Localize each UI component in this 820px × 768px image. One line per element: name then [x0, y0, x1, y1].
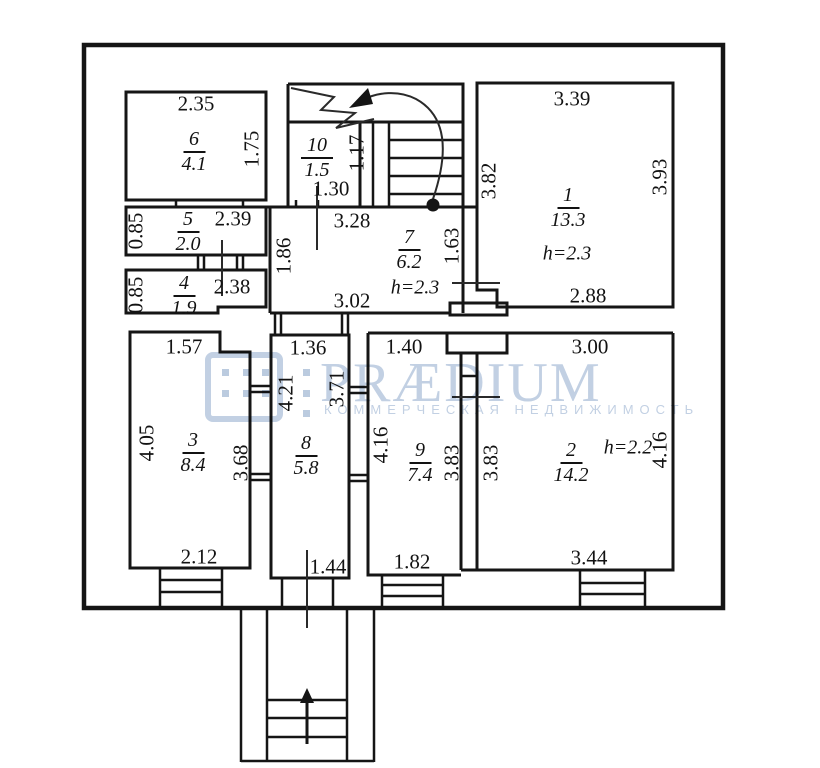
stair-flight-wall — [373, 122, 389, 207]
room-2-dim-bottom: 3.44 — [571, 546, 608, 571]
room-7-dim-bottom: 3.02 — [334, 289, 371, 314]
room-7-dim-right: 1.63 — [440, 228, 465, 265]
duct-rooms-9-2 — [447, 333, 507, 353]
room-5-label: 5 2.0 — [176, 209, 201, 255]
steps-room-3 — [160, 568, 222, 607]
steps-room-9 — [382, 575, 443, 607]
room-7-height: h=2.3 — [391, 277, 440, 300]
stair-direction-arc — [363, 93, 443, 199]
pier-5-4 — [198, 255, 243, 270]
outer-wall — [84, 45, 723, 608]
room-1-label: 1 13.3 — [551, 185, 586, 231]
entry-arrowhead-icon — [300, 688, 314, 703]
room-4-dim-right: 2.38 — [214, 275, 251, 300]
room-5-dim-left: 0.85 — [124, 213, 149, 250]
room-8-dim-bottom: 1.44 — [310, 555, 347, 580]
room-6-dim-top: 2.35 — [178, 92, 215, 117]
floorplan-linework — [0, 0, 820, 768]
room-4-label: 4 1.9 — [172, 273, 197, 319]
room-8-label: 8 5.8 — [294, 433, 319, 479]
room-10-dim-right: 1.17 — [345, 135, 370, 172]
room-3-label: 3 8.4 — [181, 430, 206, 476]
room-8-dim-left: 4.21 — [274, 375, 299, 412]
room-9-dim-right: 3.83 — [440, 445, 465, 482]
room-7-dim-left: 1.86 — [272, 238, 297, 275]
room-1-height: h=2.3 — [543, 243, 592, 266]
pier-7-8 — [275, 313, 348, 335]
room-1-dim-top: 3.39 — [554, 87, 591, 112]
room-8-dim-right: 3.71 — [325, 371, 350, 408]
pier-8-9 — [349, 387, 368, 481]
room-5-dim-right: 2.39 — [215, 207, 252, 232]
room-2-label: 2 14.2 — [554, 440, 589, 486]
room-3-dim-left: 4.05 — [135, 425, 160, 462]
room-7-label: 7 6.2 — [397, 227, 422, 273]
room-1-dim-bottom: 2.88 — [570, 284, 607, 309]
floorplan-canvas: PRÆDIUM КОММЕРЧЕСКАЯ НЕДВИЖИМОСТЬ 2.35 1… — [0, 0, 820, 768]
room-6-dim-right: 1.75 — [240, 131, 265, 168]
room-1-dim-left: 3.82 — [477, 163, 502, 200]
room-3-dim-right: 3.68 — [229, 445, 254, 482]
room-10-label: 10 1.5 — [301, 135, 333, 181]
room-2-height: h=2.2 — [604, 437, 653, 460]
room-9-dim-top: 1.40 — [386, 335, 423, 360]
room-2-dim-top: 3.00 — [572, 335, 609, 360]
room-9-label: 9 7.4 — [408, 440, 433, 486]
steps-room-2 — [580, 570, 645, 607]
room-8-dim-top: 1.36 — [290, 336, 327, 361]
room-2-dim-left: 3.83 — [479, 445, 504, 482]
room-3-dim-top: 1.57 — [166, 335, 203, 360]
room-7-dim-top: 3.28 — [334, 209, 371, 234]
stair-start-dot — [427, 199, 440, 212]
room-4-dim-left: 0.85 — [124, 277, 149, 314]
room-9-dim-bottom: 1.82 — [394, 550, 431, 575]
stair-arrowhead-icon — [349, 88, 373, 108]
room-9-dim-left: 4.16 — [369, 427, 394, 464]
room-1-dim-right: 3.93 — [648, 159, 673, 196]
stair-treads — [389, 140, 463, 194]
room-6-label: 6 4.1 — [182, 129, 207, 175]
room-3-dim-bottom: 2.12 — [181, 545, 218, 570]
